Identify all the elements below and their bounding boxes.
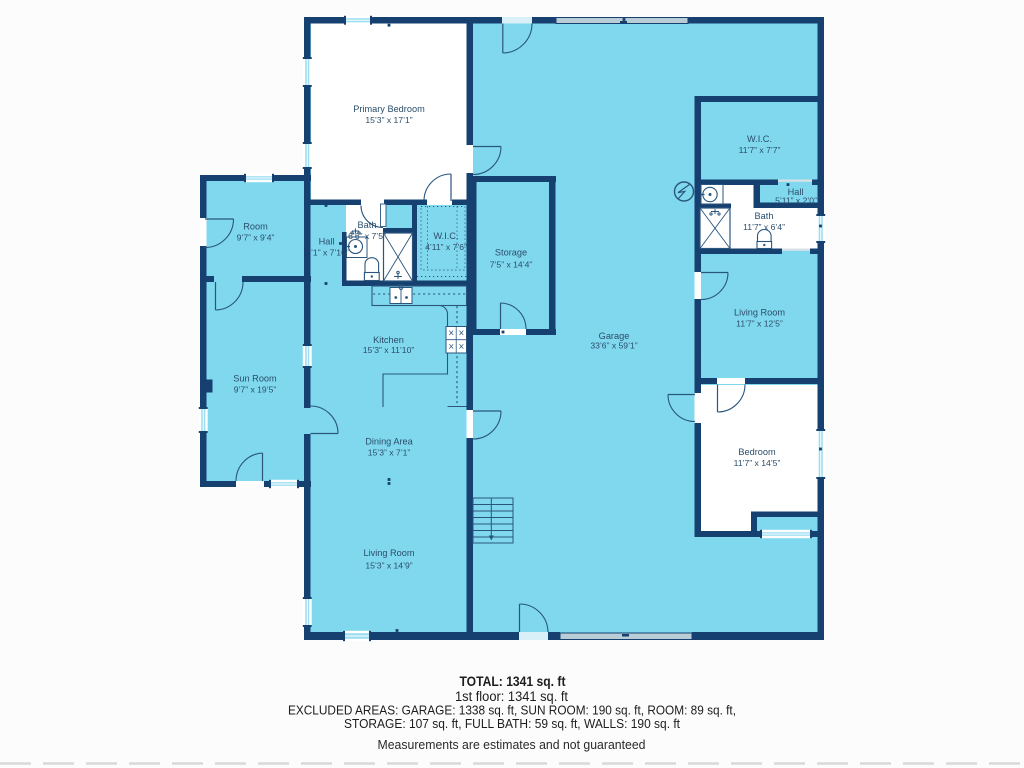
svg-text:11’7” x 7’7”: 11’7” x 7’7” bbox=[739, 145, 781, 155]
svg-text:15’3” x 17’1”: 15’3” x 17’1” bbox=[365, 115, 412, 125]
svg-text:6’6” x 7’5”: 6’6” x 7’5” bbox=[348, 231, 386, 241]
svg-text:’1” x 7’10”: ’1” x 7’10” bbox=[311, 248, 349, 258]
svg-text:11’7” x 14’5”: 11’7” x 14’5” bbox=[734, 458, 781, 468]
svg-text:Dining Area: Dining Area bbox=[365, 437, 413, 447]
svg-text:TOTAL: 1341 sq. ft: TOTAL: 1341 sq. ft bbox=[460, 674, 566, 689]
svg-text:Bath: Bath bbox=[358, 220, 377, 230]
svg-text:STORAGE: 107 sq. ft, FULL BATH: STORAGE: 107 sq. ft, FULL BATH: 59 sq. f… bbox=[344, 717, 680, 731]
svg-text:33’6” x 59’1”: 33’6” x 59’1” bbox=[590, 341, 637, 351]
svg-text:9’7” x 19’5”: 9’7” x 19’5” bbox=[234, 385, 277, 395]
svg-text:Bedroom: Bedroom bbox=[738, 447, 776, 457]
svg-text:Primary Bedroom: Primary Bedroom bbox=[353, 104, 425, 114]
svg-text:W.I.C.: W.I.C. bbox=[747, 134, 772, 144]
svg-text:9’7” x 9’4”: 9’7” x 9’4” bbox=[237, 233, 275, 243]
svg-text:7’5” x 14’4”: 7’5” x 14’4” bbox=[490, 260, 533, 270]
svg-text:5’11” x 2’0”: 5’11” x 2’0” bbox=[775, 196, 817, 206]
svg-text:Bath: Bath bbox=[755, 211, 774, 221]
svg-text:Storage: Storage bbox=[495, 248, 527, 258]
svg-text:11’7” x 6’4”: 11’7” x 6’4” bbox=[743, 222, 785, 232]
svg-text:4’11” x 7’6”: 4’11” x 7’6” bbox=[425, 242, 467, 252]
svg-text:Kitchen: Kitchen bbox=[373, 335, 404, 345]
svg-text:Measurements are estimates and: Measurements are estimates and not guara… bbox=[378, 737, 646, 752]
svg-text:11’7” x 12’5”: 11’7” x 12’5” bbox=[736, 319, 783, 329]
svg-text:W.I.C.: W.I.C. bbox=[433, 231, 458, 241]
svg-text:Living Room: Living Room bbox=[363, 548, 414, 558]
svg-text:Room: Room bbox=[243, 222, 268, 232]
svg-text:15’3” x 7’1”: 15’3” x 7’1” bbox=[368, 448, 411, 458]
svg-text:1st floor: 1341 sq. ft: 1st floor: 1341 sq. ft bbox=[455, 689, 568, 704]
svg-text:15’3” x 11’10”: 15’3” x 11’10” bbox=[363, 345, 415, 355]
svg-text:15’3” x 14’9”: 15’3” x 14’9” bbox=[365, 561, 412, 571]
svg-text:Sun Room: Sun Room bbox=[233, 374, 277, 384]
svg-text:EXCLUDED AREAS: GARAGE: 1338 s: EXCLUDED AREAS: GARAGE: 1338 sq. ft, SUN… bbox=[288, 704, 736, 718]
svg-text:Living Room: Living Room bbox=[734, 308, 785, 318]
svg-text:Hall: Hall bbox=[319, 237, 335, 247]
svg-text:Garage: Garage bbox=[599, 331, 630, 341]
